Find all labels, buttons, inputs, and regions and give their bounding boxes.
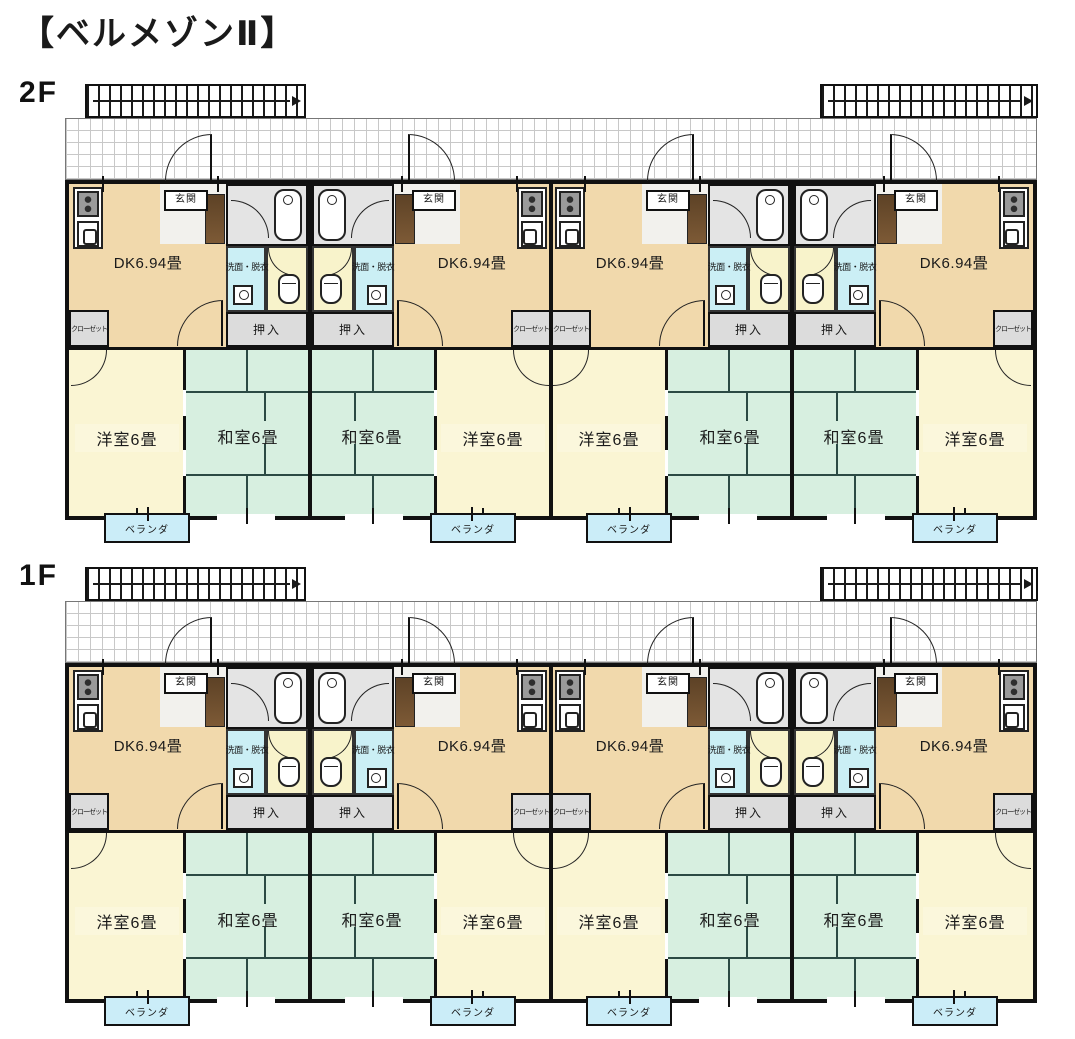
- stairs-left: [85, 84, 306, 118]
- room-divider-gap: [916, 390, 919, 416]
- kitchen-sink-icon: [559, 221, 581, 247]
- dk-room-label: DK6.94畳: [885, 735, 1023, 756]
- toilet-icon: [802, 757, 824, 787]
- apartment-unit-2f-3: 玄関 洗面・脱衣 押入 クローゼット DK6.94畳: [551, 184, 792, 516]
- oshiire-label: 押入: [253, 804, 281, 821]
- closet: クローゼット: [69, 310, 109, 347]
- bathtub-icon: [800, 189, 828, 241]
- japanese-room-label: 和室6畳: [672, 424, 788, 448]
- kitchen-sink-icon: [1003, 704, 1025, 730]
- window-mark: [998, 176, 1000, 192]
- bathroom: [312, 184, 394, 246]
- oshiire-closet: 押入: [312, 312, 394, 347]
- bathroom: [312, 667, 394, 729]
- japanese-room-label: 和室6畳: [314, 424, 430, 448]
- closet-label: クローゼット: [71, 807, 107, 817]
- bathroom: [708, 667, 790, 729]
- kitchen-sink-icon: [521, 704, 543, 730]
- entrance-label: 玄関: [164, 190, 208, 211]
- window-mark: [516, 176, 518, 192]
- entrance-label: 玄関: [894, 190, 938, 211]
- stove-icon: [559, 674, 581, 700]
- kitchen-counter: [517, 187, 547, 249]
- stairs-left: [85, 567, 306, 601]
- window-mark: [217, 176, 219, 192]
- stairs-rail-line: [93, 100, 290, 102]
- stairs-rail-line: [828, 583, 1022, 585]
- western-room-label: 洋室6畳: [923, 907, 1027, 935]
- bathtub-icon: [756, 189, 784, 241]
- oshiire-label: 押入: [735, 321, 763, 338]
- toilet-icon: [802, 274, 824, 304]
- window-mark: [584, 176, 586, 192]
- veranda: ベランダ: [430, 996, 516, 1026]
- stairs-direction-arrow-icon: [292, 579, 301, 589]
- building-outline: 玄関 洗面・脱衣 押入 クローゼット DK6.94畳: [65, 663, 1037, 1003]
- washroom: [354, 729, 394, 795]
- window-mark: [699, 176, 701, 192]
- window-mark: [217, 659, 219, 675]
- bath-door-arc: [231, 683, 269, 721]
- toilet-icon: [278, 274, 300, 304]
- wash-basin-icon: [233, 768, 253, 788]
- kitchen-sink-icon: [559, 704, 581, 730]
- kitchen-sink-icon: [521, 221, 543, 247]
- closet-label: クローゼット: [513, 324, 549, 334]
- closet: クローゼット: [551, 310, 591, 347]
- stairs-direction-arrow-icon: [292, 96, 301, 106]
- window-mark: [217, 514, 275, 520]
- floor-plan-2f: 2F 玄関: [65, 84, 1045, 554]
- bathtub-icon: [318, 189, 346, 241]
- stove-icon: [77, 191, 99, 217]
- western-room-label: 洋室6畳: [75, 424, 179, 452]
- room-divider-gap: [916, 873, 919, 899]
- party-wall: [790, 667, 794, 999]
- dk-room-label: DK6.94畳: [403, 735, 541, 756]
- stove-icon: [1003, 674, 1025, 700]
- room-divider-gap: [916, 450, 919, 476]
- veranda: ベランダ: [430, 513, 516, 543]
- window-mark: [827, 997, 885, 1003]
- apartment-unit-2f-2: 玄関 洗面・脱衣 押入 クローゼット DK6.94畳: [310, 184, 551, 516]
- kitchen-counter: [999, 187, 1029, 249]
- veranda-label: ベランダ: [933, 521, 977, 536]
- japanese-room-label: 和室6畳: [314, 907, 430, 931]
- room-divider-gap: [434, 873, 437, 899]
- building-title: 【ベルメゾンⅡ】: [20, 6, 296, 55]
- entrance-label: 玄関: [412, 190, 456, 211]
- bathroom: [226, 184, 308, 246]
- room-divider-gap: [434, 450, 437, 476]
- stove-icon: [77, 674, 99, 700]
- building-outline: 玄関 洗面・脱衣 押入 クローゼット DK6.94畳: [65, 180, 1037, 520]
- bathtub-icon: [274, 672, 302, 724]
- kitchen-sink-icon: [1003, 221, 1025, 247]
- closet: クローゼット: [69, 793, 109, 830]
- veranda-label: ベランダ: [607, 521, 651, 536]
- party-wall: [308, 184, 312, 516]
- veranda-label: ベランダ: [451, 1004, 495, 1019]
- window-mark: [217, 997, 275, 1003]
- bathtub-icon: [800, 672, 828, 724]
- stairs-right: [820, 567, 1038, 601]
- party-wall: [549, 667, 553, 999]
- veranda: ベランダ: [586, 996, 672, 1026]
- veranda: ベランダ: [912, 996, 998, 1026]
- closet: クローゼット: [993, 310, 1033, 347]
- dk-room-label: DK6.94畳: [79, 252, 217, 273]
- japanese-room-label: 和室6畳: [796, 907, 912, 931]
- washroom: [836, 729, 876, 795]
- apartment-unit-1f-2: 玄関 洗面・脱衣 押入 クローゼット DK6.94畳: [310, 667, 551, 999]
- bathtub-icon: [756, 672, 784, 724]
- bath-door-arc: [351, 200, 389, 238]
- bath-door-arc: [713, 683, 751, 721]
- washroom: [836, 246, 876, 312]
- party-wall: [549, 184, 553, 516]
- oshiire-closet: 押入: [312, 795, 394, 830]
- bath-door-arc: [351, 683, 389, 721]
- dk-room-label: DK6.94畳: [561, 735, 699, 756]
- veranda-label: ベランダ: [125, 1004, 169, 1019]
- stove-icon: [1003, 191, 1025, 217]
- closet: クローゼット: [511, 310, 551, 347]
- window-mark: [998, 659, 1000, 675]
- apartment-unit-2f-1: 玄関 洗面・脱衣 押入 クローゼット DK6.94畳: [69, 184, 310, 516]
- closet: クローゼット: [511, 793, 551, 830]
- kitchen-counter: [555, 670, 585, 732]
- bathroom: [794, 184, 876, 246]
- window-mark: [345, 997, 403, 1003]
- wash-basin-icon: [849, 768, 869, 788]
- kitchen-sink-icon: [77, 221, 99, 247]
- stairs-direction-arrow-icon: [1024, 96, 1033, 106]
- bathtub-icon: [274, 189, 302, 241]
- veranda-label: ベランダ: [451, 521, 495, 536]
- floor-label: 2F: [19, 76, 58, 110]
- oshiire-closet: 押入: [708, 795, 790, 830]
- entrance-label: 玄関: [646, 673, 690, 694]
- kitchen-sink-icon: [77, 704, 99, 730]
- room-divider-gap: [434, 390, 437, 416]
- closet-label: クローゼット: [553, 807, 589, 817]
- washroom: [226, 246, 266, 312]
- party-wall: [790, 184, 794, 516]
- stove-icon: [521, 191, 543, 217]
- window-mark: [699, 997, 757, 1003]
- western-room-label: 洋室6畳: [75, 907, 179, 935]
- toilet-icon: [760, 274, 782, 304]
- oshiire-label: 押入: [339, 804, 367, 821]
- veranda: ベランダ: [586, 513, 672, 543]
- oshiire-label: 押入: [339, 321, 367, 338]
- floorplan-page: 【ベルメゾンⅡ】 2F 玄関: [0, 0, 1075, 1039]
- kitchen-counter: [517, 670, 547, 732]
- window-mark: [102, 659, 104, 675]
- apartment-unit-2f-4: 玄関 洗面・脱衣 押入 クローゼット DK6.94畳: [792, 184, 1033, 516]
- window-mark: [699, 659, 701, 675]
- dk-room-label: DK6.94畳: [561, 252, 699, 273]
- kitchen-counter: [999, 670, 1029, 732]
- wash-basin-icon: [367, 285, 387, 305]
- entrance-label: 玄関: [894, 673, 938, 694]
- bathroom: [794, 667, 876, 729]
- dk-room-label: DK6.94畳: [79, 735, 217, 756]
- washroom: [354, 246, 394, 312]
- washroom: [708, 729, 748, 795]
- stairs-right: [820, 84, 1038, 118]
- shoe-cabinet-icon: [205, 194, 225, 244]
- oshiire-closet: 押入: [794, 795, 876, 830]
- party-wall: [308, 667, 312, 999]
- stairs-rail-line: [93, 583, 290, 585]
- oshiire-closet: 押入: [226, 312, 308, 347]
- japanese-room-label: 和室6畳: [796, 424, 912, 448]
- oshiire-label: 押入: [735, 804, 763, 821]
- floor-label: 1F: [19, 559, 58, 593]
- window-mark: [883, 176, 885, 192]
- veranda-label: ベランダ: [607, 1004, 651, 1019]
- room-divider-gap: [434, 933, 437, 959]
- window-mark: [584, 659, 586, 675]
- western-room-label: 洋室6畳: [441, 424, 545, 452]
- toilet-icon: [278, 757, 300, 787]
- veranda: ベランダ: [104, 996, 190, 1026]
- floor-plan-1f: 1F 玄関: [65, 567, 1045, 1037]
- oshiire-label: 押入: [253, 321, 281, 338]
- western-room-label: 洋室6畳: [557, 907, 661, 935]
- entrance-label: 玄関: [646, 190, 690, 211]
- western-room-label: 洋室6畳: [441, 907, 545, 935]
- toilet-icon: [320, 274, 342, 304]
- toilet-icon: [760, 757, 782, 787]
- kitchen-counter: [555, 187, 585, 249]
- kitchen-counter: [73, 187, 103, 249]
- toilet-icon: [320, 757, 342, 787]
- window-mark: [883, 659, 885, 675]
- closet: クローゼット: [993, 793, 1033, 830]
- stairs-direction-arrow-icon: [1024, 579, 1033, 589]
- window-mark: [345, 514, 403, 520]
- oshiire-closet: 押入: [226, 795, 308, 830]
- shoe-cabinet-icon: [687, 194, 707, 244]
- bath-door-arc: [231, 200, 269, 238]
- bath-door-arc: [713, 200, 751, 238]
- wash-basin-icon: [715, 285, 735, 305]
- closet-label: クローゼット: [513, 807, 549, 817]
- japanese-room-label: 和室6畳: [190, 424, 306, 448]
- japanese-room-label: 和室6畳: [672, 907, 788, 931]
- oshiire-closet: 押入: [708, 312, 790, 347]
- western-room-label: 洋室6畳: [923, 424, 1027, 452]
- washroom: [226, 729, 266, 795]
- apartment-unit-1f-3: 玄関 洗面・脱衣 押入 クローゼット DK6.94畳: [551, 667, 792, 999]
- closet-label: クローゼット: [995, 324, 1031, 334]
- veranda: ベランダ: [104, 513, 190, 543]
- shoe-cabinet-icon: [205, 677, 225, 727]
- stove-icon: [521, 674, 543, 700]
- oshiire-closet: 押入: [794, 312, 876, 347]
- window-mark: [401, 659, 403, 675]
- room-divider-gap: [916, 933, 919, 959]
- apartment-unit-1f-1: 玄関 洗面・脱衣 押入 クローゼット DK6.94畳: [69, 667, 310, 999]
- window-mark: [102, 176, 104, 192]
- veranda-label: ベランダ: [125, 521, 169, 536]
- oshiire-label: 押入: [821, 321, 849, 338]
- dk-room-label: DK6.94畳: [403, 252, 541, 273]
- bath-door-arc: [833, 200, 871, 238]
- wash-basin-icon: [367, 768, 387, 788]
- stove-icon: [559, 191, 581, 217]
- window-mark: [699, 514, 757, 520]
- bathtub-icon: [318, 672, 346, 724]
- entrance-label: 玄関: [164, 673, 208, 694]
- closet-label: クローゼット: [995, 807, 1031, 817]
- wash-basin-icon: [715, 768, 735, 788]
- apartment-unit-1f-4: 玄関 洗面・脱衣 押入 クローゼット DK6.94畳: [792, 667, 1033, 999]
- veranda-label: ベランダ: [933, 1004, 977, 1019]
- wash-basin-icon: [233, 285, 253, 305]
- wash-basin-icon: [849, 285, 869, 305]
- window-mark: [516, 659, 518, 675]
- window-mark: [827, 514, 885, 520]
- entrance-label: 玄関: [412, 673, 456, 694]
- bath-door-arc: [833, 683, 871, 721]
- window-mark: [401, 176, 403, 192]
- shoe-cabinet-icon: [687, 677, 707, 727]
- bathroom: [226, 667, 308, 729]
- closet-label: クローゼット: [553, 324, 589, 334]
- japanese-room-label: 和室6畳: [190, 907, 306, 931]
- closet: クローゼット: [551, 793, 591, 830]
- stairs-rail-line: [828, 100, 1022, 102]
- kitchen-counter: [73, 670, 103, 732]
- closet-label: クローゼット: [71, 324, 107, 334]
- veranda: ベランダ: [912, 513, 998, 543]
- oshiire-label: 押入: [821, 804, 849, 821]
- washroom: [708, 246, 748, 312]
- western-room-label: 洋室6畳: [557, 424, 661, 452]
- bathroom: [708, 184, 790, 246]
- dk-room-label: DK6.94畳: [885, 252, 1023, 273]
